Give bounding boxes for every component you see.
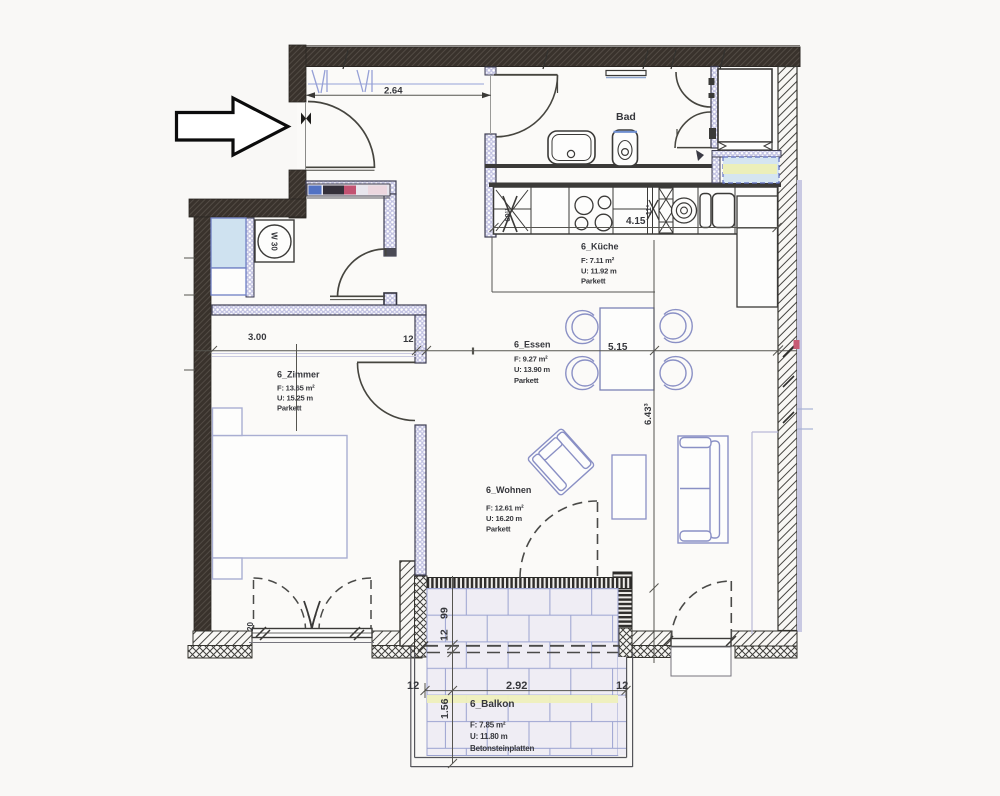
svg-text:F: 13.65 m²: F: 13.65 m² — [277, 384, 315, 393]
svg-text:Parkett: Parkett — [277, 404, 302, 413]
svg-text:12: 12 — [616, 680, 628, 692]
svg-text:12: 12 — [407, 680, 419, 692]
svg-text:2.64: 2.64 — [384, 86, 403, 97]
svg-text:U: 11.80 m: U: 11.80 m — [470, 732, 508, 741]
svg-text:Parkett: Parkett — [486, 525, 511, 534]
svg-text:6_Essen: 6_Essen — [514, 340, 551, 350]
svg-text:Parkett: Parkett — [514, 376, 539, 385]
svg-text:U: 11.92 m: U: 11.92 m — [581, 267, 617, 276]
svg-text:2.92: 2.92 — [506, 680, 527, 692]
svg-text:F: 9.27 m²: F: 9.27 m² — [514, 355, 548, 364]
svg-text:6.43³: 6.43³ — [643, 403, 654, 425]
svg-text:6_Balkon: 6_Balkon — [470, 699, 514, 710]
svg-text:U: 15.25 m: U: 15.25 m — [277, 394, 313, 403]
svg-text:6_Zimmer: 6_Zimmer — [277, 370, 320, 380]
svg-text:20: 20 — [246, 622, 255, 631]
svg-text:Betonsteinplatten: Betonsteinplatten — [470, 744, 534, 753]
svg-text:6_Wohnen: 6_Wohnen — [486, 485, 531, 495]
svg-text:F: 7.85 m²: F: 7.85 m² — [470, 721, 506, 730]
svg-text:U: 16.20 m: U: 16.20 m — [486, 514, 522, 523]
svg-text:5.15: 5.15 — [608, 342, 628, 353]
svg-text:3.00: 3.00 — [248, 332, 267, 343]
svg-text:99: 99 — [439, 607, 451, 619]
svg-text:12: 12 — [439, 629, 451, 641]
svg-text:12: 12 — [403, 334, 414, 345]
svg-text:Bad: Bad — [616, 111, 636, 123]
svg-text:6_Küche: 6_Küche — [581, 242, 619, 252]
svg-text:60¹¹: 60¹¹ — [503, 208, 512, 222]
svg-text:11¹: 11¹ — [644, 204, 653, 215]
svg-text:4.15: 4.15 — [626, 216, 646, 227]
svg-text:U: 13.90 m: U: 13.90 m — [514, 365, 550, 374]
svg-text:F: 7.11 m²: F: 7.11 m² — [581, 256, 615, 265]
svg-text:1.56: 1.56 — [439, 698, 451, 719]
svg-text:W 30: W 30 — [270, 232, 279, 251]
svg-text:F: 12.61 m²: F: 12.61 m² — [486, 504, 524, 513]
svg-text:Parkett: Parkett — [581, 277, 606, 286]
